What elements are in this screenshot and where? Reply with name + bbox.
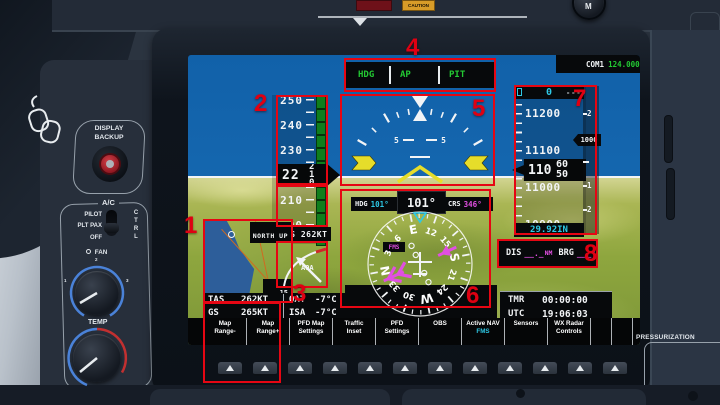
temp-knob[interactable] xyxy=(73,334,121,382)
softkey-up-icon xyxy=(611,365,619,371)
warning-light xyxy=(356,0,392,11)
pressurization-label: PRESSURIZATION xyxy=(636,334,695,341)
softkey-traffic-inset: TrafficInset xyxy=(332,318,375,345)
lower-screw-2 xyxy=(688,391,698,401)
fan-tick-2: 2 xyxy=(95,257,98,262)
switch-off-label: OFF xyxy=(70,235,102,241)
com1-label: COM1 xyxy=(586,60,604,69)
lower-bump-left xyxy=(150,389,390,405)
switch-plt-pax-label: PLT PAX xyxy=(66,223,102,229)
temp-label: TEMP xyxy=(88,319,107,326)
softkey-pfd-map-settings: PFD MapSettings xyxy=(289,318,332,345)
annotation-box-2a xyxy=(276,95,328,185)
annotation-number-1: 1 xyxy=(184,214,197,238)
right-grip-slot-2 xyxy=(666,168,675,220)
cockpit-scene: CAUTION M DISPLAY BACKUP A/C PILOT PLT P… xyxy=(0,0,720,405)
softkey-up-icon xyxy=(541,365,549,371)
annotation-number-3: 3 xyxy=(293,282,306,306)
softkey-up-icon xyxy=(401,365,409,371)
fan-tick-1: 1 xyxy=(64,278,67,283)
softkey-sensors: Sensors xyxy=(504,318,547,345)
annotation-number-5: 5 xyxy=(472,97,485,121)
isa-label: ISA xyxy=(289,308,305,318)
softkey-button-9[interactable] xyxy=(498,362,522,376)
annotation-box-2b xyxy=(276,185,328,227)
softkey-up-icon xyxy=(506,365,514,371)
annotation-number-2: 2 xyxy=(254,92,267,116)
caution-label: CAUTION xyxy=(408,3,429,8)
display-backup-button-dot xyxy=(106,160,114,168)
display-backup-label: DISPLAY BACKUP xyxy=(78,125,140,143)
annotation-number-7: 7 xyxy=(573,87,586,111)
caution-light: CAUTION xyxy=(402,0,435,11)
softkey-up-icon xyxy=(576,365,584,371)
softkey-button-5[interactable] xyxy=(358,362,382,376)
softkey-pfd-settings: PFDSettings xyxy=(375,318,418,345)
softkey-up-icon xyxy=(471,365,479,371)
softkey-up-icon xyxy=(331,365,339,371)
annotation-number-6: 6 xyxy=(466,284,479,308)
fan-dot-icon xyxy=(86,249,91,254)
ac-label: A/C xyxy=(98,198,119,207)
right-grip-slot-1 xyxy=(664,115,673,163)
tmr-value: 00:00:00 xyxy=(542,295,588,306)
ctrl-label: CTRL xyxy=(133,210,139,242)
softkey-empty-1 xyxy=(590,318,611,345)
softkey-button-11[interactable] xyxy=(568,362,592,376)
softkey-obs: OBS xyxy=(418,318,461,345)
ac-toggle-knob[interactable] xyxy=(104,223,119,233)
annotation-box-4 xyxy=(344,58,496,92)
lower-screw-1 xyxy=(516,389,525,398)
fan-tick-3: 3 xyxy=(126,278,129,283)
switch-pilot-label: PILOT xyxy=(70,212,102,218)
com1-strip: COM1 124.000 xyxy=(556,55,640,73)
softkey-up-icon xyxy=(366,365,374,371)
oat-value: -7°C xyxy=(315,295,337,305)
softkey-button-8[interactable] xyxy=(463,362,487,376)
annotation-number-8: 8 xyxy=(584,242,597,266)
softkey-button-4[interactable] xyxy=(323,362,347,376)
annotation-box-1b xyxy=(203,302,281,383)
softkey-button-7[interactable] xyxy=(428,362,452,376)
tmr-label: TMR xyxy=(508,295,524,305)
softkey-button-6[interactable] xyxy=(393,362,417,376)
annotation-box-8 xyxy=(497,239,598,268)
isa-value: -7°C xyxy=(315,308,337,318)
softkey-button-3[interactable] xyxy=(288,362,312,376)
softkey-button-10[interactable] xyxy=(533,362,557,376)
fan-label: FAN xyxy=(86,249,107,256)
com1-frequency: 124.000 xyxy=(608,60,640,69)
softkey-button-12[interactable] xyxy=(603,362,627,376)
softkey-active-nav: Active NAVFMS xyxy=(461,318,504,345)
annotation-number-4: 4 xyxy=(406,36,419,60)
softkey-empty-2 xyxy=(611,318,632,345)
fan-knob[interactable] xyxy=(75,271,119,315)
compass-knob-label: M xyxy=(585,2,592,11)
softkey-up-icon xyxy=(296,365,304,371)
softkey-up-icon xyxy=(436,365,444,371)
softkey-wx-radar-controls: WX RadarControls xyxy=(547,318,590,345)
